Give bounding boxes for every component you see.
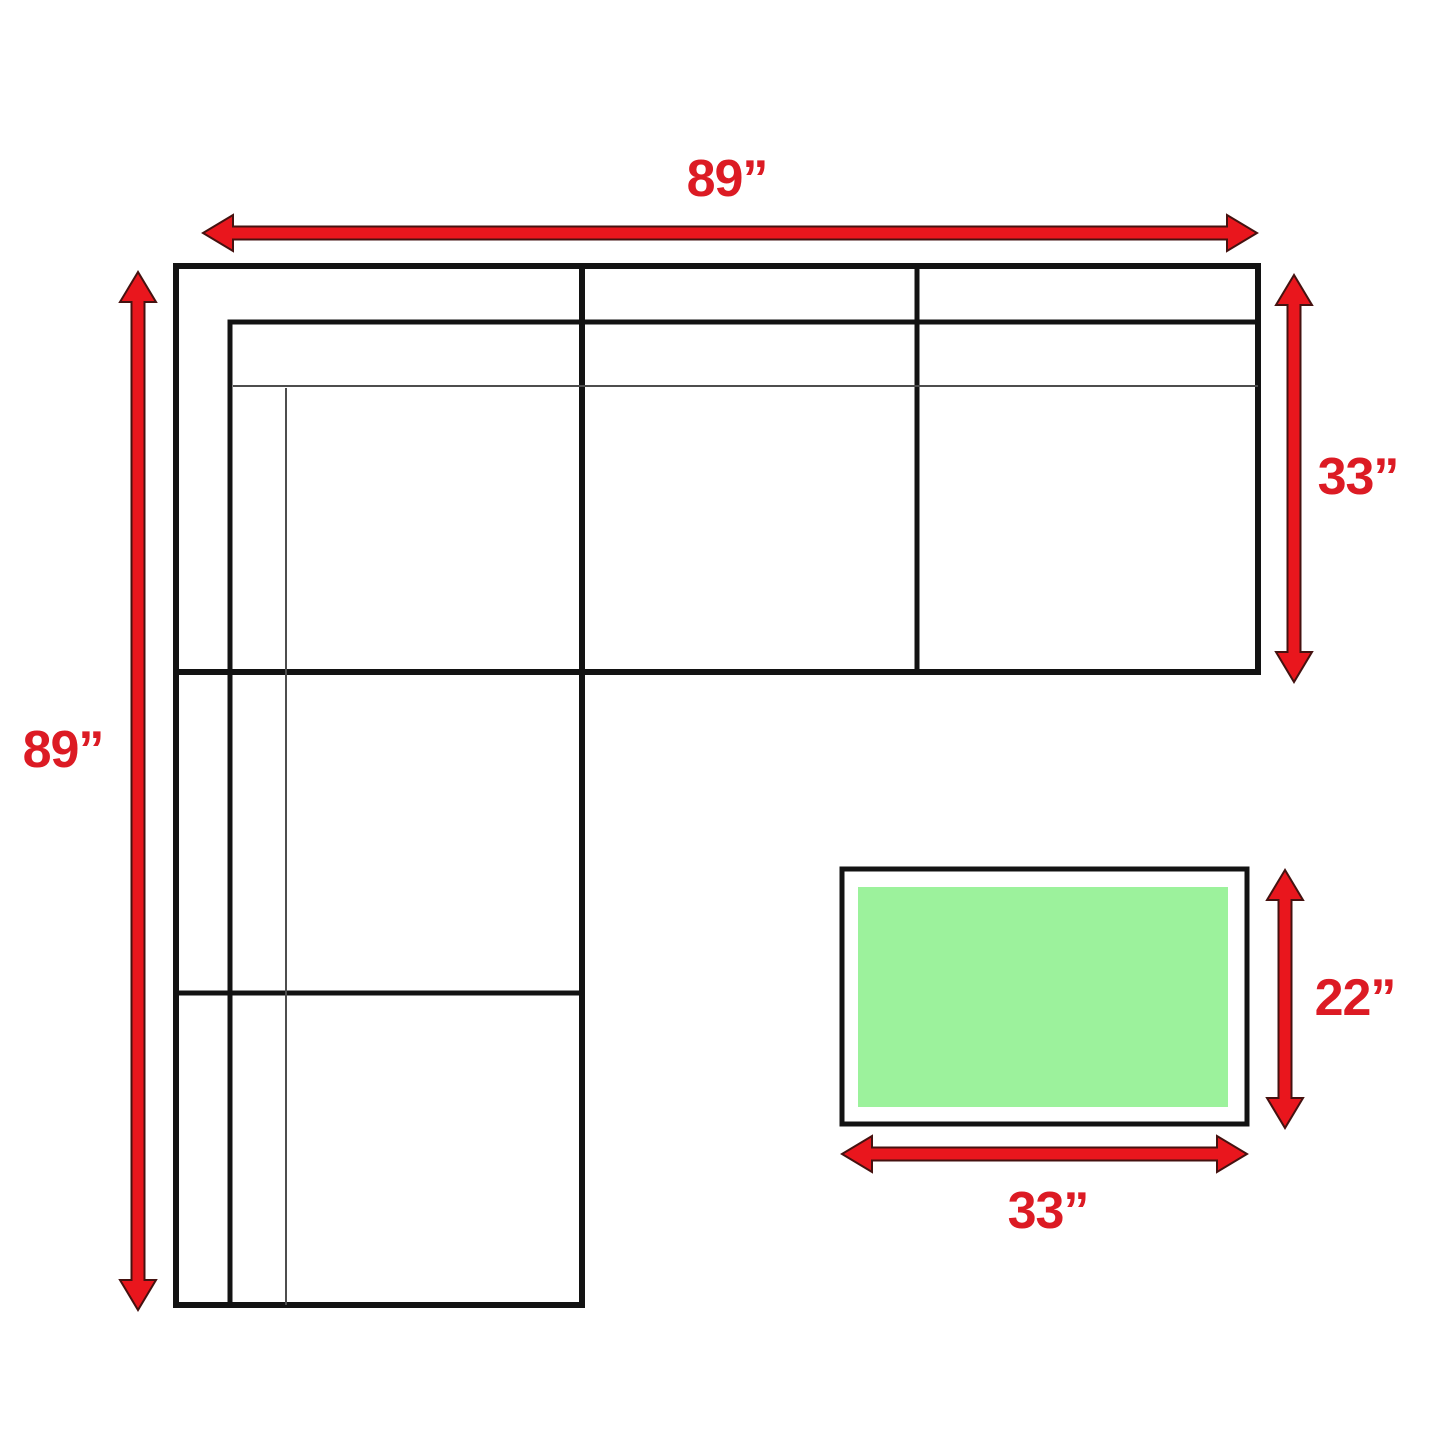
ottoman-depth-arrow: [1267, 870, 1303, 1128]
sofa-length-label: 89”: [23, 721, 104, 779]
ottoman-plan: [842, 869, 1247, 1124]
ottoman-width-arrow: [842, 1136, 1247, 1172]
ottoman-depth-label: 22”: [1315, 969, 1396, 1027]
sofa-depth-label: 33”: [1318, 448, 1399, 506]
sofa-width-arrow: [203, 215, 1257, 251]
ottoman-cushion: [858, 887, 1228, 1107]
diagram-svg: 89” 33” 89” 22” 33”: [0, 0, 1445, 1445]
sofa-length-arrow: [120, 272, 156, 1310]
sofa-width-label: 89”: [687, 150, 768, 208]
sofa-depth-arrow: [1276, 275, 1312, 682]
sectional-sofa-dimension-diagram: 89” 33” 89” 22” 33”: [0, 0, 1445, 1445]
ottoman-width-label: 33”: [1008, 1182, 1089, 1240]
